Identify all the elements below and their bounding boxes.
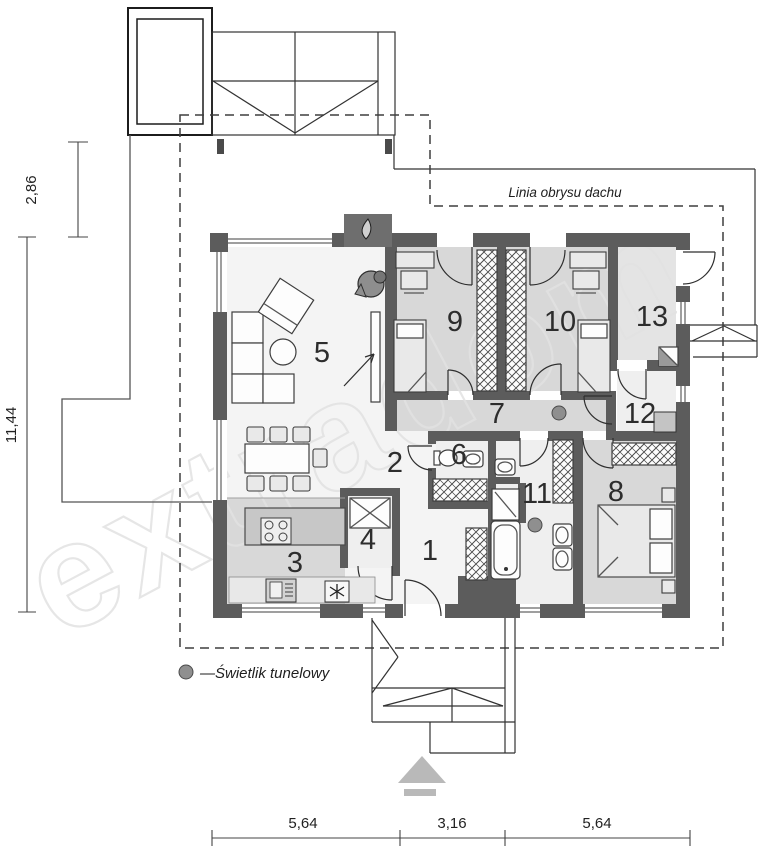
corner-window (228, 234, 332, 247)
bathtub (491, 521, 520, 579)
room-label-3: 3 (287, 547, 303, 579)
room-label-12: 12 (624, 398, 656, 430)
floor-plan: extradom (0, 0, 766, 860)
room-label-6: 6 (451, 439, 467, 471)
room-label-7: 7 (489, 398, 505, 430)
carport-post (385, 139, 392, 154)
bed-room9 (394, 320, 426, 392)
freezer-snowflake-icon (325, 581, 349, 602)
room-label-8: 8 (608, 476, 624, 508)
exterior-door-room13 (683, 252, 715, 284)
kitchen-island (245, 508, 345, 545)
legend: —Świetlik tunelowy (179, 664, 331, 682)
dim-bottom-1: 5,64 (288, 815, 317, 832)
washer-icon (654, 412, 676, 432)
shower (492, 489, 519, 520)
bed-room10 (578, 320, 610, 392)
roof-outline-label: Linia obrysu dachu (508, 185, 622, 200)
room-label-4: 4 (360, 524, 376, 556)
legend-skylight-dot-icon (179, 665, 193, 679)
dim-left-lower: 11,44 (3, 407, 20, 443)
dresser-room9 (396, 252, 434, 268)
sink-hall-icon (495, 459, 515, 475)
dresser-room10 (570, 252, 606, 268)
kitchen-counter (229, 577, 375, 603)
room-label-5: 5 (314, 337, 330, 369)
room-label-10: 10 (544, 306, 576, 338)
room-label-2: 2 (387, 447, 403, 479)
skylight-dot (528, 518, 542, 532)
room-label-9: 9 (447, 306, 463, 338)
tv-cabinet (371, 312, 380, 402)
coffee-table (270, 339, 296, 365)
carport-roof (212, 32, 395, 135)
entrance-arrow (398, 756, 446, 796)
dim-bottom-2: 3,16 (437, 815, 466, 832)
legend-skylight-label: —Świetlik tunelowy (199, 664, 331, 682)
dim-bottom-3: 5,64 (582, 815, 611, 832)
heater-icon (659, 347, 678, 366)
room-label-11: 11 (522, 478, 552, 510)
room-label-13: 13 (636, 301, 668, 333)
room-label-1: 1 (422, 535, 438, 567)
carport-post (217, 139, 224, 154)
dim-left-upper: 2,86 (23, 175, 40, 204)
skylight-dot (552, 406, 566, 420)
entrance-porch (372, 618, 515, 753)
